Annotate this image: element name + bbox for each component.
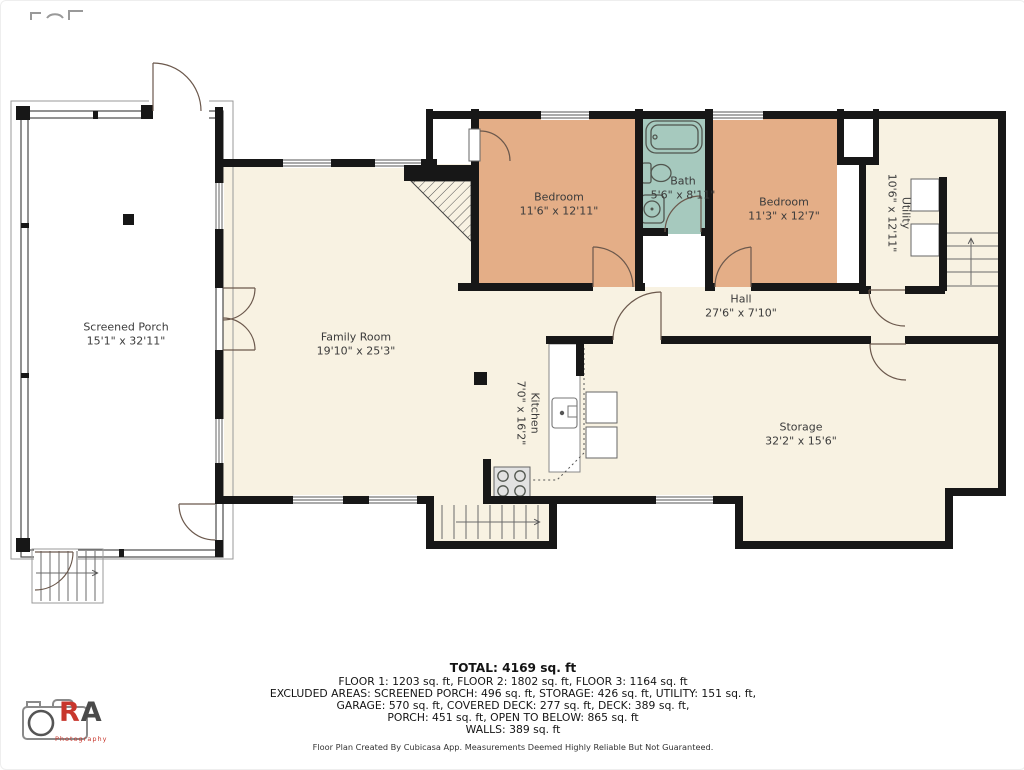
disclaimer: Floor Plan Created By Cubicasa App. Meas… [1, 742, 1024, 752]
porch-post [141, 105, 153, 119]
porch-post [16, 106, 30, 120]
label-bedroom-2: Bedroom11'3" x 12'7" [748, 196, 820, 225]
watermark-icon [25, 1, 95, 21]
window [214, 183, 224, 229]
floor-plan-page: Screened Porch15'1" x 32'11" Family Room… [0, 0, 1024, 770]
refrigerator [586, 392, 617, 423]
window [293, 495, 343, 505]
label-utility: Utility10'6" x 12'11" [884, 174, 913, 253]
porch-post [16, 538, 30, 552]
camera-lens-icon [29, 711, 53, 735]
label-storage: Storage32'2" x 15'6" [765, 421, 837, 450]
label-kitchen: Kitchen7'0" x 16'2" [513, 381, 542, 446]
label-bath: Bath5'6" x 8'11" [651, 175, 716, 204]
window [541, 110, 589, 120]
logo-subtitle: Photography [55, 735, 107, 743]
window [369, 495, 417, 505]
label-hall: Hall27'6" x 7'10" [705, 293, 777, 322]
window [214, 419, 224, 463]
label-screened-porch: Screened Porch15'1" x 32'11" [83, 321, 168, 350]
window [656, 495, 713, 505]
appliance [586, 427, 617, 458]
linen-alcove [643, 238, 705, 287]
logo-text: RA [59, 697, 103, 728]
label-bedroom-1: Bedroom11'6" x 12'11" [520, 191, 599, 220]
closet-bedroom-2 [844, 118, 873, 159]
summary-walls: WALLS: 389 sq. ft [1, 723, 1024, 736]
closet-bedroom-1 [433, 118, 471, 164]
post-marker [123, 214, 134, 225]
label-family-room: Family Room19'10" x 25'3" [317, 331, 396, 360]
dryer [911, 224, 939, 256]
stove [494, 467, 530, 499]
photographer-logo: RA Photography [17, 691, 127, 753]
summary-total: TOTAL: 4169 sq. ft [1, 661, 1024, 675]
kitchen-sink [552, 398, 577, 428]
window [283, 158, 331, 168]
post-marker [474, 372, 487, 385]
washer [911, 179, 939, 211]
window [711, 110, 763, 120]
